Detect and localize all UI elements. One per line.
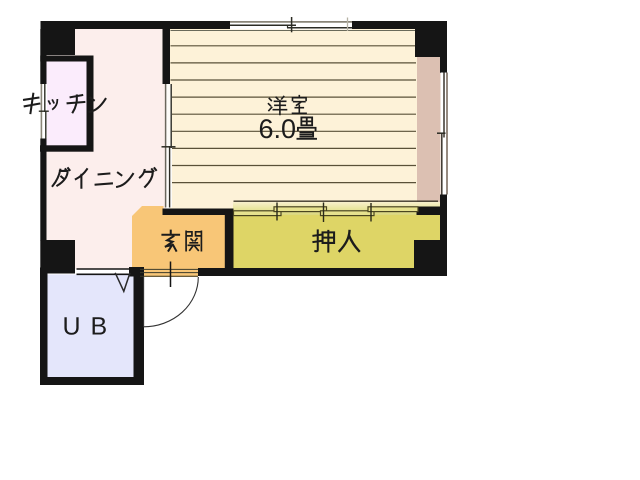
svg-text:UB: UB xyxy=(63,313,118,341)
svg-text:6.0: 6.0 xyxy=(259,114,297,144)
